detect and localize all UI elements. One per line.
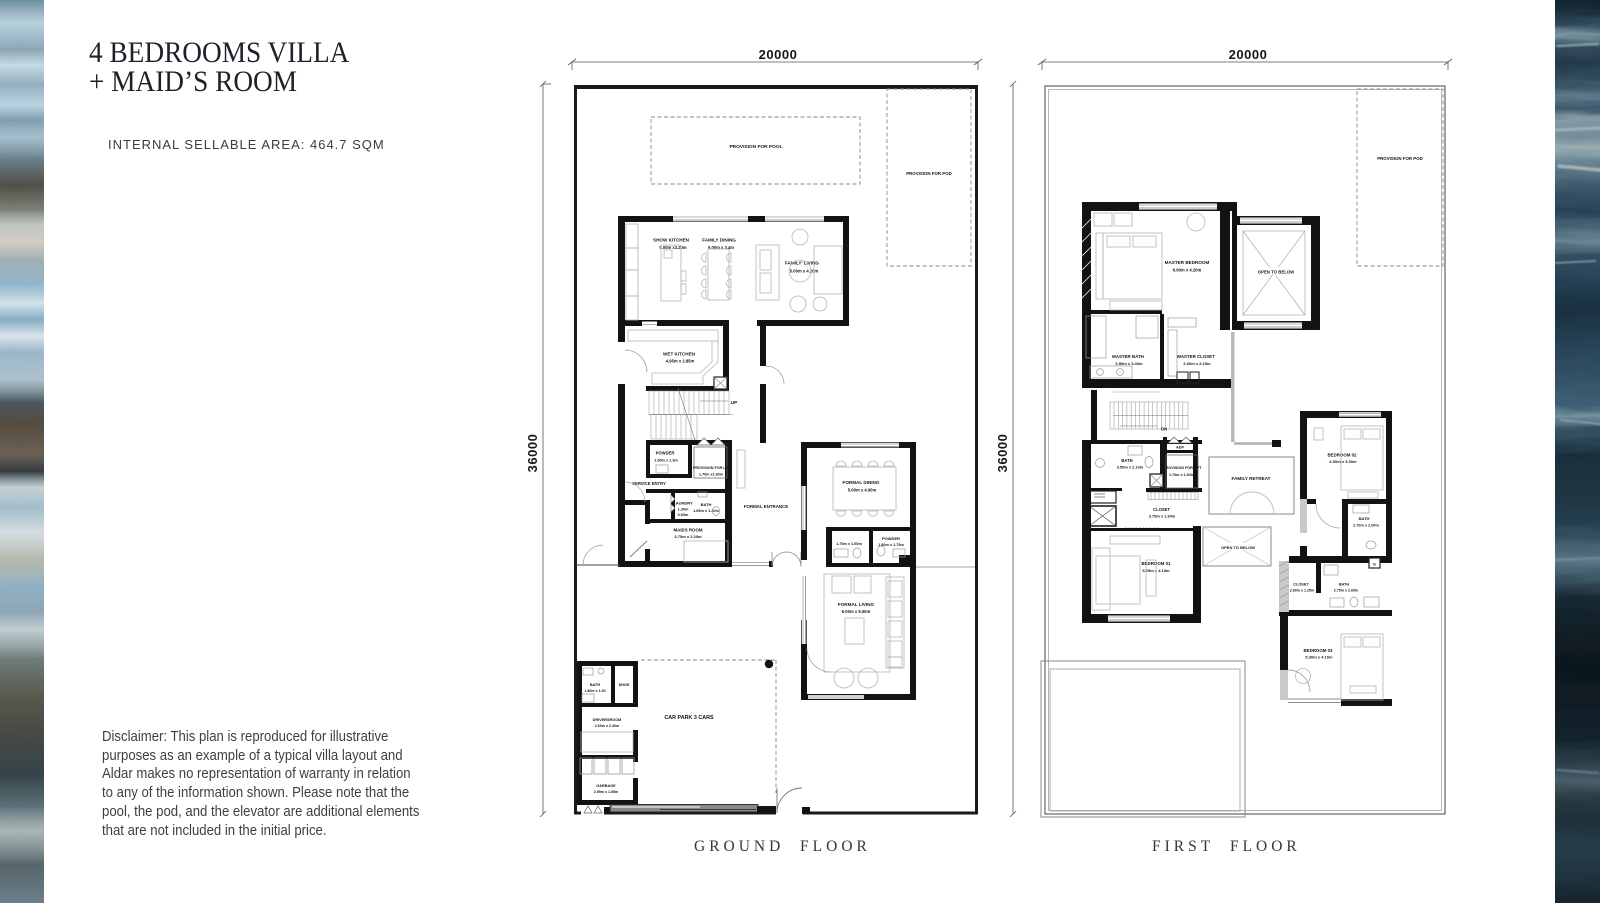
svg-text:FAMILY RETREAT: FAMILY RETREAT (1232, 476, 1271, 481)
svg-text:36000: 36000 (995, 434, 1010, 473)
svg-text:1.75m x 1.60m: 1.75m x 1.60m (836, 542, 862, 546)
svg-text:MAIDS ROOM: MAIDS ROOM (673, 528, 702, 533)
svg-text:1.30m: 1.30m (678, 508, 689, 512)
svg-text:20000: 20000 (759, 47, 798, 62)
svg-text:MASTER BATH: MASTER BATH (1112, 354, 1144, 359)
svg-text:BEDROOM 03: BEDROOM 03 (1303, 648, 1333, 653)
svg-text:BATH: BATH (701, 502, 712, 507)
svg-text:2.95m x 1.85m: 2.95m x 1.85m (594, 790, 618, 794)
svg-text:S: S (1373, 562, 1376, 567)
svg-text:2.60m x 2.15m: 2.60m x 2.15m (1183, 361, 1211, 366)
svg-text:2.70m x 2.00m: 2.70m x 2.00m (1353, 524, 1379, 528)
svg-text:FORMAL ENTRANCE: FORMAL ENTRANCE (744, 504, 788, 509)
svg-text:PROVISION FOR POOL: PROVISION FOR POOL (729, 144, 782, 150)
svg-text:PROVISION FOR POD: PROVISION FOR POD (906, 171, 952, 176)
svg-text:1.80m x 1.60: 1.80m x 1.60 (584, 689, 605, 693)
svg-text:FORMAL DINING: FORMAL DINING (843, 480, 880, 485)
svg-text:6.00m x 5.00m: 6.00m x 5.00m (842, 609, 871, 614)
svg-text:5.00m x 4.00m: 5.00m x 4.00m (848, 488, 877, 493)
svg-text:0.60m: 0.60m (678, 513, 689, 517)
svg-text:FORMAL LIVING: FORMAL LIVING (838, 602, 875, 607)
svg-text:PROVISION FOR LIFT: PROVISION FOR LIFT (1163, 466, 1202, 470)
svg-text:BATH: BATH (1339, 583, 1350, 587)
svg-text:OPEN TO BELOW: OPEN TO BELOW (1258, 270, 1295, 275)
svg-text:DN: DN (1161, 427, 1167, 432)
svg-text:POWDER: POWDER (656, 451, 675, 456)
svg-text:FAMILY DINING: FAMILY DINING (702, 238, 736, 243)
svg-text:1.70m x1.60m: 1.70m x1.60m (699, 473, 724, 477)
svg-text:1.90m x 1.3m: 1.90m x 1.3m (654, 459, 678, 463)
svg-text:5.00m x3.20m: 5.00m x3.20m (659, 245, 687, 250)
svg-text:1.70m x 1.60m: 1.70m x 1.60m (1169, 473, 1195, 477)
svg-text:BATH: BATH (590, 683, 601, 687)
svg-text:3.75m x 2.20m: 3.75m x 2.20m (674, 534, 702, 539)
svg-text:3.80m x 3.40m: 3.80m x 3.40m (1115, 361, 1143, 366)
svg-text:LAUNDRY: LAUNDRY (673, 501, 693, 506)
svg-text:UP: UP (731, 400, 738, 406)
svg-text:BATH: BATH (1359, 516, 1370, 521)
svg-text:DRIVERSROOM: DRIVERSROOM (593, 718, 622, 722)
svg-text:SHOE: SHOE (619, 683, 630, 687)
svg-text:SHOW KITCHEN: SHOW KITCHEN (653, 238, 690, 243)
svg-text:GARBAGE: GARBAGE (596, 784, 616, 788)
svg-text:SERVICE ENTRY: SERVICE ENTRY (632, 481, 666, 486)
svg-text:6.90m x 4.20m: 6.90m x 4.20m (1173, 268, 1202, 273)
svg-text:CAR PARK 3 CARS: CAR PARK 3 CARS (664, 715, 714, 721)
svg-text:2.60m x 2.40m: 2.60m x 2.40m (595, 724, 619, 728)
svg-text:1.65m x 1.40m: 1.65m x 1.40m (693, 509, 719, 513)
svg-text:WET KITCHEN: WET KITCHEN (663, 352, 696, 357)
svg-text:BEDROOM 02: BEDROOM 02 (1327, 453, 1357, 458)
svg-text:2.80m x 1.25m: 2.80m x 1.25m (1290, 589, 1314, 593)
svg-text:4.00m x 3.30m: 4.00m x 3.30m (1329, 459, 1357, 464)
svg-text:OPEN TO BELOW: OPEN TO BELOW (1221, 545, 1255, 550)
svg-text:PROVISION FOR LIFT: PROVISION FOR LIFT (693, 466, 732, 470)
svg-text:ADP: ADP (1176, 446, 1184, 450)
svg-text:CLOSET: CLOSET (1293, 583, 1309, 587)
svg-text:3.50m x 2.10m: 3.50m x 2.10m (1117, 465, 1144, 470)
svg-text:4.95m x 2.85m: 4.95m x 2.85m (666, 359, 695, 364)
svg-text:20000: 20000 (1229, 47, 1268, 62)
svg-text:MASTER CLOSET: MASTER CLOSET (1177, 354, 1215, 359)
svg-text:CLOSET: CLOSET (1153, 507, 1170, 512)
svg-text:36000: 36000 (525, 434, 540, 473)
svg-text:5.30m x 4.10m: 5.30m x 4.10m (1305, 655, 1333, 660)
svg-text:POWDER: POWDER (882, 536, 900, 541)
svg-text:BATH: BATH (1121, 458, 1132, 463)
svg-text:PROVISION FOR POD: PROVISION FOR POD (1377, 156, 1423, 161)
svg-text:2.75m x 2.65m: 2.75m x 2.65m (1334, 589, 1358, 593)
svg-text:MASTER BEDROOM: MASTER BEDROOM (1165, 260, 1210, 265)
svg-text:3.75m x 1.30m: 3.75m x 1.30m (1149, 514, 1176, 519)
